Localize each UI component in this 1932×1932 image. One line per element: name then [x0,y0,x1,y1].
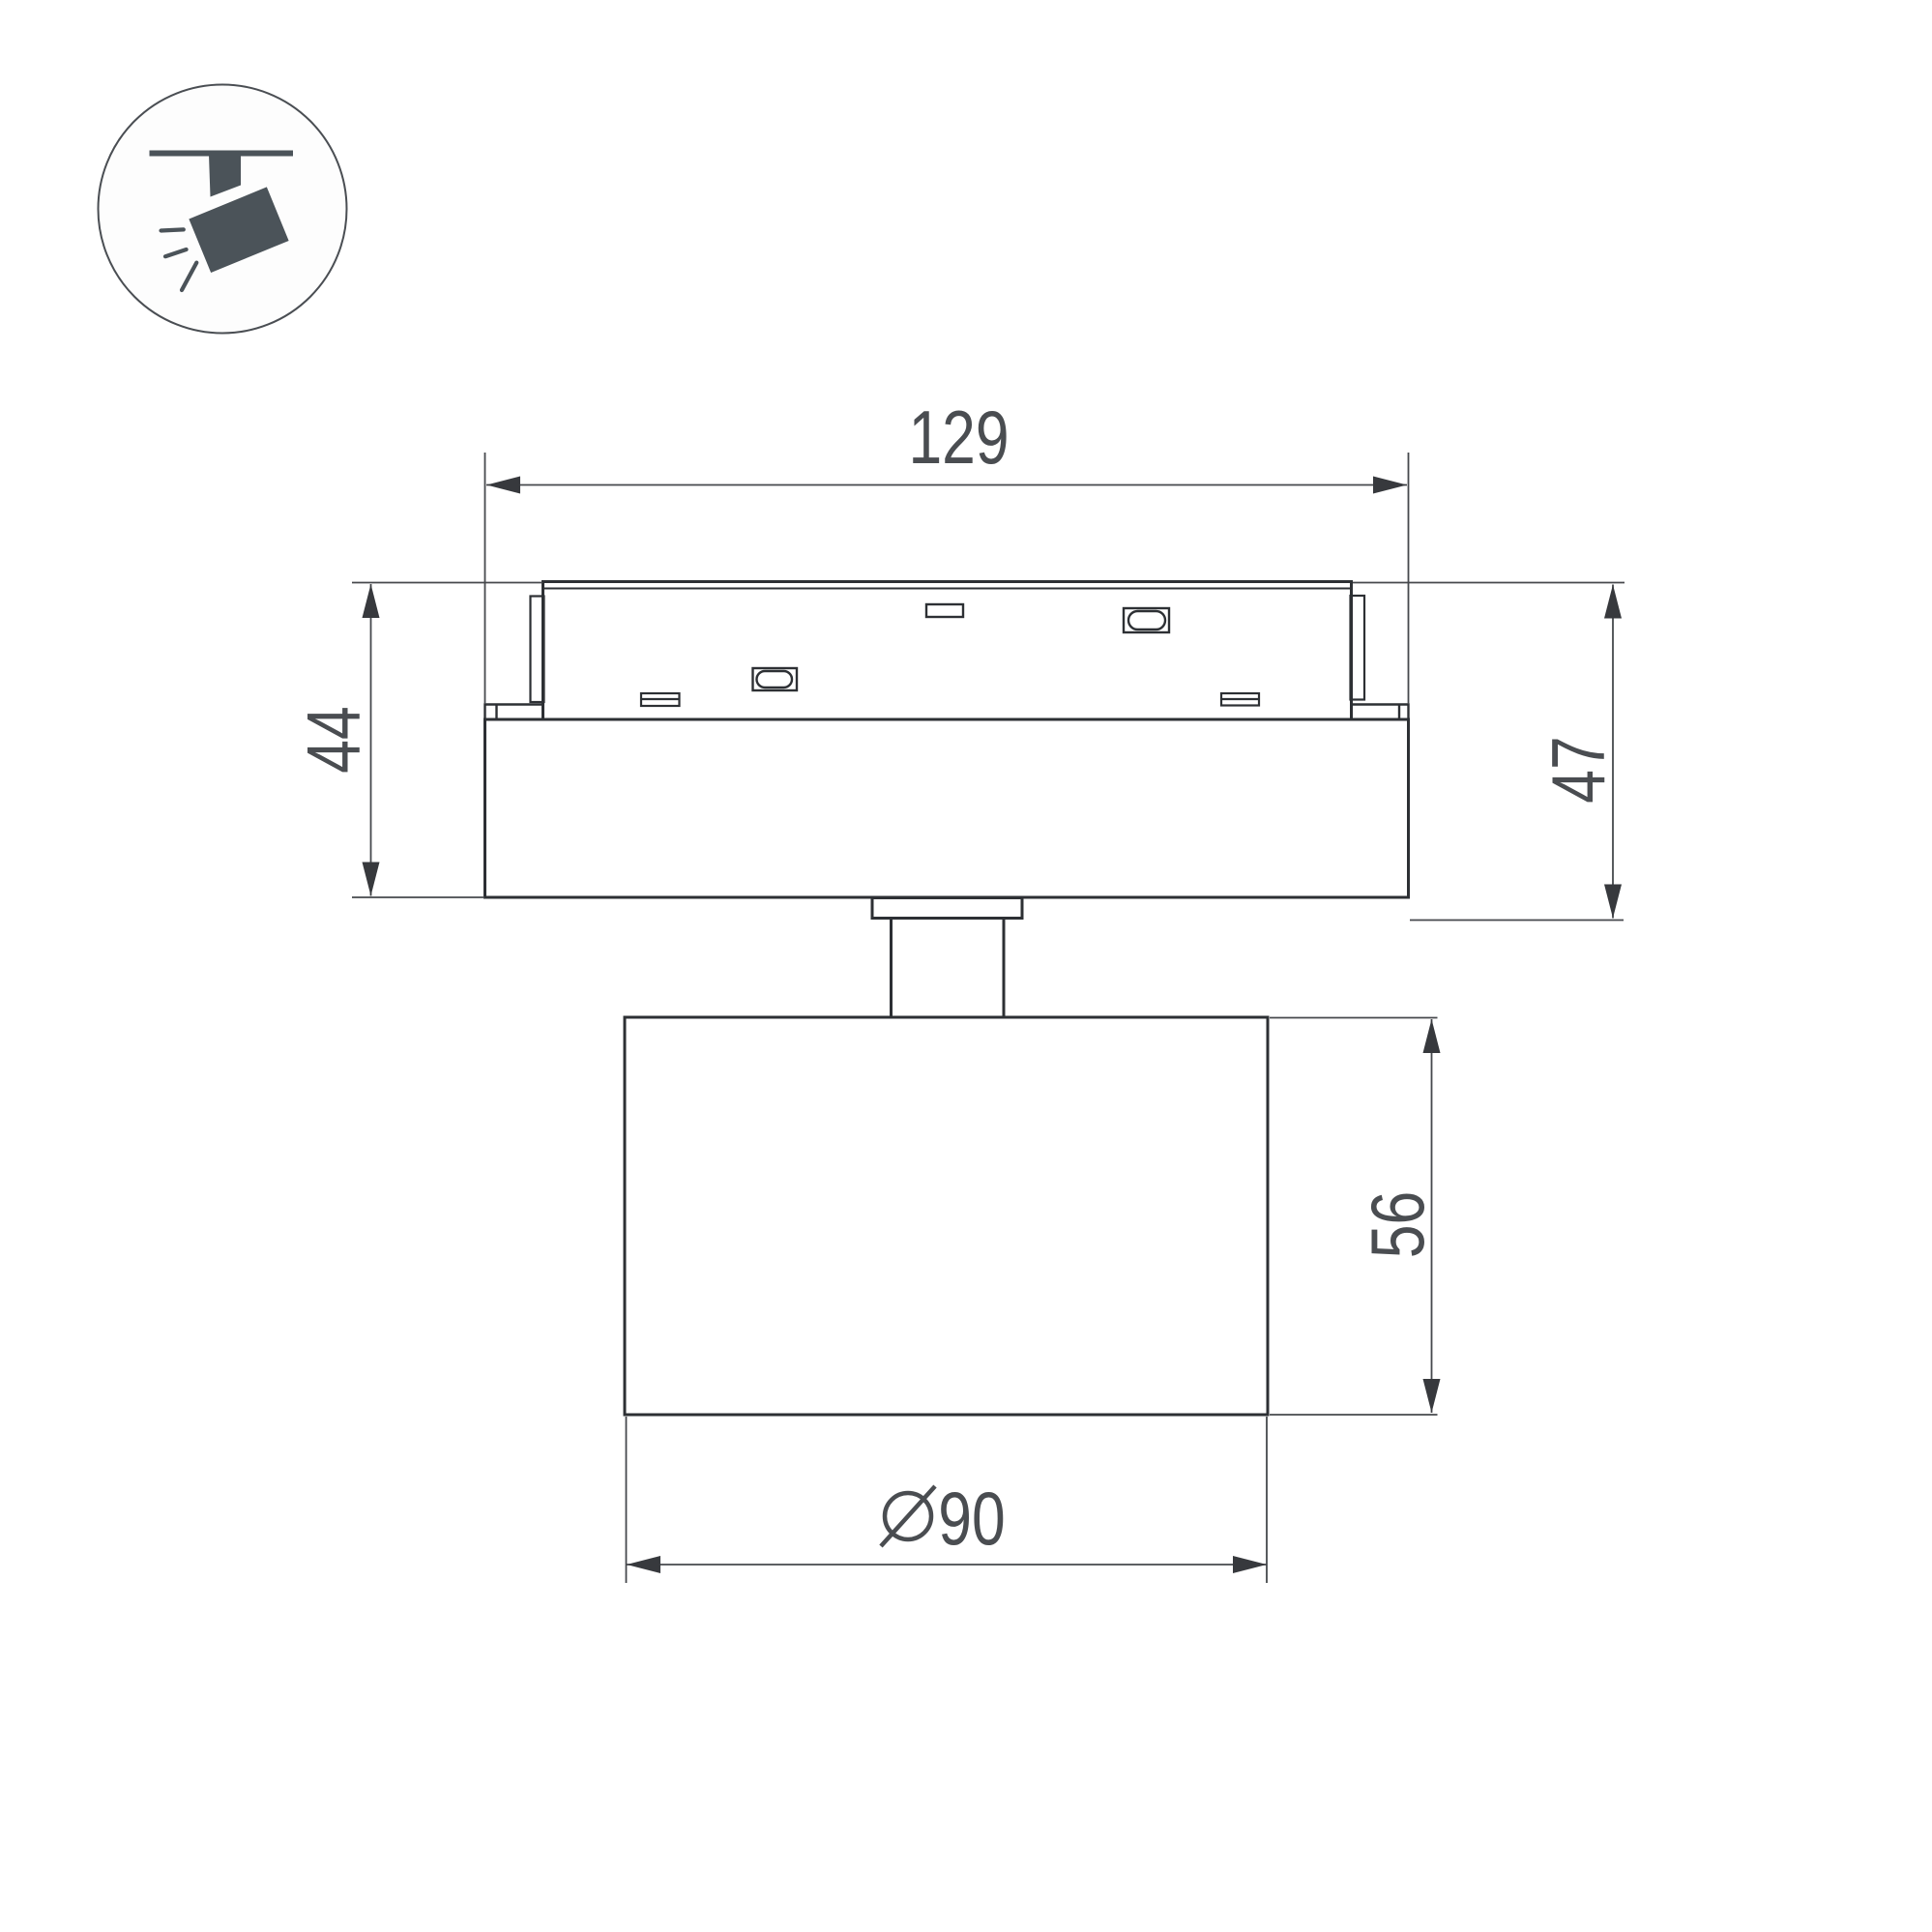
svg-text:44: 44 [291,706,375,773]
svg-text:56: 56 [1355,1191,1439,1258]
svg-text:47: 47 [1536,736,1620,803]
svg-text:129: 129 [908,395,1009,479]
svg-text:90: 90 [938,1476,1005,1560]
